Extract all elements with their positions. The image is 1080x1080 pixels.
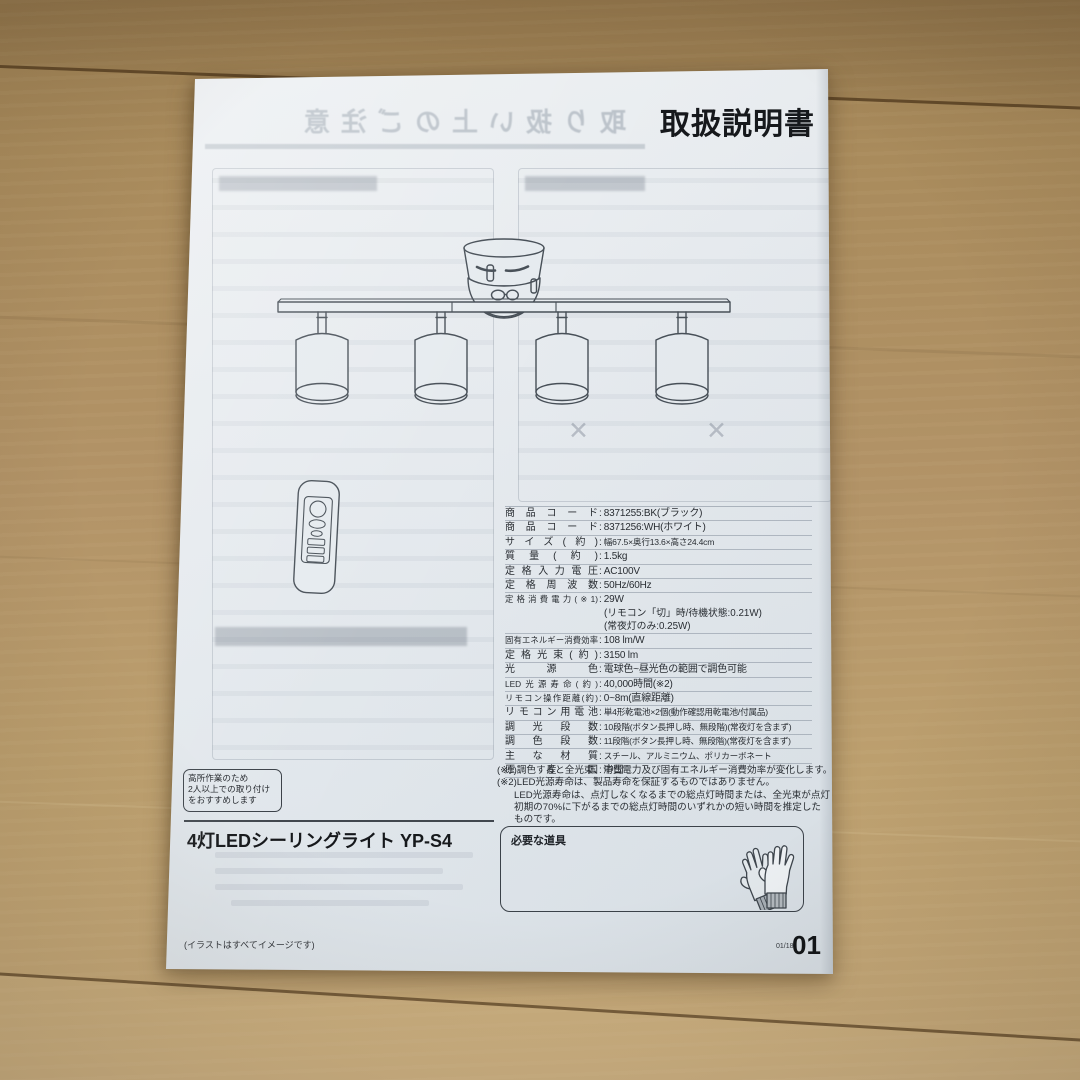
spec-row: 主な材質:スチール、アルミニウム、ポリカーボネート [505,749,812,763]
spec-row: 定格光束(約):3150 lm [505,649,812,663]
spec-separator: : [599,579,602,592]
work-gloves-icon [732,832,804,910]
spec-value: 10段階(ボタン長押し時、無段階)(常夜灯を含まず) [604,721,812,734]
showthrough-text-row [231,900,429,906]
spec-row: 商品コード:8371255:BK(ブラック) [505,507,812,521]
page-title: 取扱説明書 [545,99,815,143]
manual-page: 取り扱い上のご注意 ✕ ✕ 取扱説明書 [0,0,1080,1080]
showthrough-text-row [215,868,443,874]
spec-separator: : [599,750,602,763]
spec-value: 電球色~昼光色の範囲で調色可能 [604,663,812,676]
spec-row: サイズ(約):幅67.5×奥行13.6×高さ24.4cm [505,536,812,550]
spec-row: 調色段数:11段階(ボタン長押し時、無段階)(常夜灯を含まず) [505,735,812,749]
spec-row: 調光段数:10段階(ボタン長押し時、無段階)(常夜灯を含まず) [505,721,812,735]
spotlight-shades [296,312,708,404]
paper-sheet: 取り扱い上のご注意 ✕ ✕ 取扱説明書 [0,0,1080,1080]
spec-label: サイズ(約) [505,536,598,549]
spec-label: リモコン操作距離(約) [505,692,598,705]
spec-label: 主な材質 [505,750,598,763]
spec-value: 40,000時間(※2) [604,678,812,691]
spec-separator: : [599,663,602,676]
spec-extra-line: (リモコン「切」時/待機状態:0.21W) [505,607,812,620]
spec-value: 8371256:WH(ホワイト) [604,521,812,534]
remote-control-illustration [285,470,385,610]
ceiling-light-illustration [240,232,760,422]
spec-label: 質量(約) [505,550,598,563]
spec-label: 調光段数 [505,721,598,734]
showthrough-text-row [215,884,463,890]
spec-separator: : [599,692,602,705]
spec-row: 光源色:電球色~昼光色の範囲で調色可能 [505,663,812,677]
spec-row: 固有エネルギー消費効率:108 lm/W [505,634,812,648]
spec-label: LED光源寿命(約) [505,678,598,691]
showthrough-text-line [205,144,645,149]
spec-separator: : [599,521,602,534]
required-tools-label: 必要な道具 [511,832,566,848]
spec-row: リモコン用電池:単4形乾電池×2個(動作確認用乾電池/付属品) [505,706,812,720]
spec-value: 108 lm/W [604,634,812,647]
spec-separator: : [599,721,602,734]
footnote-line: LED光源寿命は、点灯しなくなるまでの総点灯時間または、全光束が点灯 [497,790,839,802]
spec-separator: : [599,507,602,520]
spec-value: 単4形乾電池×2個(動作確認用乾電池/付属品) [604,706,812,719]
spec-value: 3150 lm [604,649,812,662]
spec-separator: : [599,634,602,647]
spec-value: 29W [604,593,812,606]
photo-of-manual-on-floor: 取り扱い上のご注意 ✕ ✕ 取扱説明書 [0,0,1080,1080]
spec-row: 商品コード:8371256:WH(ホワイト) [505,521,812,535]
spec-value: 0~8m(直線距離) [604,692,812,705]
spec-value: スチール、アルミニウム、ポリカーボネート [604,750,812,763]
spec-row: 定格入力電圧:AC100V [505,565,812,579]
paper-edge-shading [816,66,836,976]
page-number: 01 [792,930,821,961]
title-divider-line [184,820,494,822]
spec-row: 定格周波数:50Hz/60Hz [505,579,812,593]
warning-line: 2人以上での取り付け [188,784,277,795]
spec-value: 8371255:BK(ブラック) [604,507,812,520]
spec-value: 11段階(ボタン長押し時、無段階)(常夜灯を含まず) [604,735,812,748]
page-indicator: 01/18 [776,943,794,950]
warning-line: 高所作業のため [188,773,277,784]
showthrough-header-bar [219,176,377,191]
spec-value: AC100V [604,565,812,578]
spec-separator: : [599,536,602,549]
spec-label: 定格入力電圧 [505,565,598,578]
spec-row: 質量(約):1.5kg [505,550,812,564]
spec-label: リモコン用電池 [505,706,598,719]
spec-value: 50Hz/60Hz [604,579,812,592]
footnote-line: ものです。 [497,814,839,826]
product-title: 4灯LEDシーリングライト YP-S4 [187,827,452,853]
spec-label: 定格光束(約) [505,649,598,662]
illustration-disclaimer: (イラストはすべてイメージです) [184,938,315,951]
warning-line: をおすすめします [188,795,277,806]
spec-label: 定格周波数 [505,579,598,592]
spec-separator: : [599,706,602,719]
showthrough-section-bar [215,627,467,646]
footnote-line: (※2)LED光源寿命は、製品寿命を保証するものではありません。 [497,777,839,789]
spec-label: 固有エネルギー消費効率 [505,634,598,647]
spec-separator: : [599,565,602,578]
showthrough-header-bar [525,176,645,191]
spec-separator: : [599,550,602,563]
spec-label: 商品コード [505,507,598,520]
spec-footnotes: (※1)調色すると全光束、消費電力及び固有エネルギー消費効率が変化します。 (※… [497,765,839,826]
spec-label: 定格消費電力(※1) [505,593,598,606]
spec-label: 調色段数 [505,735,598,748]
spec-label: 光源色 [505,663,598,676]
spec-table: 商品コード:8371255:BK(ブラック)商品コード:8371256:WH(ホ… [505,506,812,778]
spec-separator: : [599,649,602,662]
footnote-line: (※1)調色すると全光束、消費電力及び固有エネルギー消費効率が変化します。 [497,765,839,777]
spec-label: 商品コード [505,521,598,534]
footnote-line: 初期の70%に下がるまでの総点灯時間のいずれかの短い時間を推定した [497,802,839,814]
spec-value: 幅67.5×奥行13.6×高さ24.4cm [604,536,812,549]
spec-row: リモコン操作距離(約):0~8m(直線距離) [505,692,812,706]
spec-row: 定格消費電力(※1):29W(リモコン「切」時/待機状態:0.21W)(常夜灯の… [505,593,812,634]
two-person-install-note-box: 高所作業のため 2人以上での取り付け をおすすめします [183,769,282,812]
spec-separator: : [599,678,602,691]
spec-separator: : [599,593,602,606]
spec-separator: : [599,735,602,748]
spec-extra-line: (常夜灯のみ:0.25W) [505,620,812,633]
spec-row: LED光源寿命(約):40,000時間(※2) [505,678,812,692]
spec-value: 1.5kg [604,550,812,563]
